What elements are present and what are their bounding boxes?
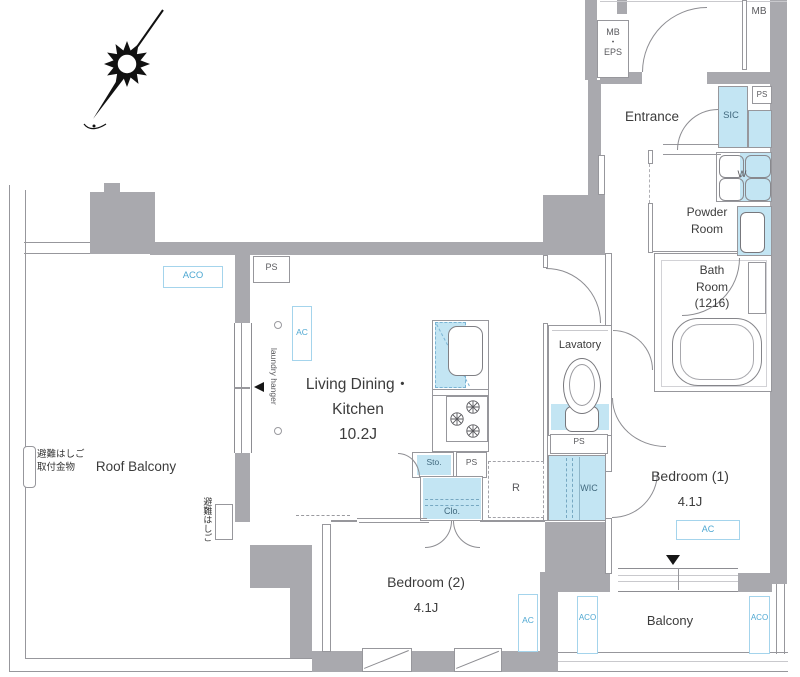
sic-label: SIC [714, 111, 748, 122]
ac-label: AC [292, 328, 312, 338]
wall [235, 255, 250, 323]
lavatory-door-arc [613, 330, 653, 370]
aco-label: ACO [749, 613, 770, 622]
mb-eps-line2: EPS [604, 47, 622, 57]
wall [737, 573, 772, 592]
wall [543, 195, 605, 255]
balcony-rail-midline [558, 661, 788, 662]
bedroom2-west-wall [322, 524, 331, 652]
closet-door-arc [425, 521, 452, 548]
wall [104, 183, 120, 193]
refrigerator-label: R [488, 482, 544, 495]
lavatory-inner-line [552, 330, 608, 331]
entrance-label: Entrance [602, 109, 702, 125]
ac-label: AC [518, 616, 538, 626]
powder-line1: Powder [687, 205, 728, 219]
wall [707, 72, 787, 84]
evac-ladder-label: 避難はしご [202, 497, 212, 551]
ldk-wall-stub [543, 255, 548, 268]
powder-opening [649, 164, 651, 203]
mb-label: MB [746, 6, 772, 18]
bedroom2-sliding-door [357, 518, 427, 519]
counter-line [432, 389, 489, 390]
wall [150, 242, 545, 255]
balcony-label: Balcony [600, 614, 740, 629]
laundry-hook [274, 321, 282, 329]
wic-label: WIC [572, 483, 606, 493]
mb-eps-dot: ・ [608, 37, 617, 47]
wall [235, 453, 250, 522]
bathtub-inner [680, 324, 754, 380]
ldk-line2: Kitchen [332, 401, 384, 418]
ps-label: PS [253, 262, 290, 272]
aco-box-balcony-right [749, 596, 770, 654]
bath-line1: Bath [700, 263, 725, 277]
powder-wall-stub [648, 150, 653, 164]
hall-wall [598, 155, 605, 195]
wall [290, 588, 312, 658]
toilet-bowl-inner [569, 364, 595, 406]
closet-door-arc [453, 521, 480, 548]
washer-pan-pad [719, 178, 744, 201]
top-boundary-line [600, 1, 787, 2]
wall [312, 651, 362, 672]
evac-ladder-hatch [215, 504, 233, 540]
washer-pan-pad [745, 178, 771, 201]
wall [545, 522, 607, 575]
ps-label: PS [550, 437, 608, 447]
clo-label: Clo. [423, 506, 481, 516]
roof-balcony-rail-bottom [25, 658, 312, 659]
wall [558, 572, 610, 592]
roof-balcony-rail-top [24, 242, 95, 254]
mb-eps-label: MB・EPS [597, 27, 629, 57]
powder-room-label: PowderRoom [669, 204, 745, 238]
washer-label: W [733, 170, 751, 181]
wall [250, 545, 312, 588]
balcony-rail [558, 652, 788, 672]
ac-label: AC [676, 524, 740, 534]
evac-line1: 避難はしご [37, 449, 85, 460]
wall [540, 572, 558, 672]
ldk-label: Living Dining・Kitchen10.2J [278, 372, 438, 447]
evac-ladder-fitting-label: 避難はしご取付金物 [37, 449, 85, 474]
bedroom2-north-wall [331, 520, 357, 522]
corridor-wall [605, 253, 612, 332]
powder-wall-stub [648, 203, 653, 253]
evac-line2: 取付金物 [37, 462, 75, 473]
ldk-door-arc [546, 268, 601, 323]
ldk-line1: Living Dining・ [306, 376, 410, 393]
mb-eps-line1: MB [606, 27, 620, 37]
sic-shoe-closet [748, 110, 772, 148]
compass-north-icon [70, 2, 180, 152]
roof-balcony-inner-rail [25, 190, 26, 658]
powder-line2: Room [691, 222, 723, 236]
bath-line3: (1216) [695, 296, 730, 310]
bedroom1-west-wall [605, 518, 612, 574]
window-direction-marker [666, 555, 680, 565]
closet-hanger-pole [425, 499, 479, 506]
wall [770, 0, 787, 584]
entrance-door-arc [642, 7, 707, 72]
bedroom2-label: Bedroom (2) [336, 574, 516, 590]
bedroom2-north-wall [480, 520, 545, 522]
roof-balcony-outer-rail [9, 185, 10, 672]
aco-box-balcony-left [577, 596, 598, 654]
ps-label: PS [456, 458, 487, 468]
ps-label: PS [752, 90, 772, 99]
bath-line2: Room [696, 280, 728, 294]
bath-counter [748, 262, 766, 314]
ldk-bedroom2-boundary [296, 515, 350, 517]
wall [412, 651, 454, 672]
laundry-hanger-label: laundry hanger [268, 348, 278, 444]
aco-label: ACO [577, 613, 598, 622]
wall [90, 192, 155, 254]
window-direction-marker [254, 382, 264, 392]
floor-plan: MB MB・EPS Entrance SIC PS W PowderRoom B… [0, 0, 800, 677]
bath-room-label: BathRoom(1216) [674, 262, 750, 312]
bedroom1-window-tick [678, 568, 679, 590]
bedroom2-size: 4.1J [336, 601, 516, 616]
stove-burners-icon [446, 396, 488, 442]
aco-label: ACO [163, 271, 223, 282]
lavatory-label: Lavatory [549, 339, 611, 352]
bedroom1-label: Bedroom (1) [610, 468, 770, 484]
kitchen-sink [448, 326, 483, 376]
bedroom1-size: 4.1J [610, 495, 770, 510]
wall [585, 0, 597, 80]
balcony-rail-right [776, 584, 785, 654]
bedroom2-sliding-door [359, 522, 429, 523]
ldk-size: 10.2J [339, 426, 377, 443]
wall [617, 0, 627, 14]
evac-ladder-bracket [23, 446, 36, 488]
ldk-window-divider [234, 387, 250, 389]
bedroom1-door-arc [612, 398, 666, 447]
sto-label: Sto. [417, 458, 451, 468]
